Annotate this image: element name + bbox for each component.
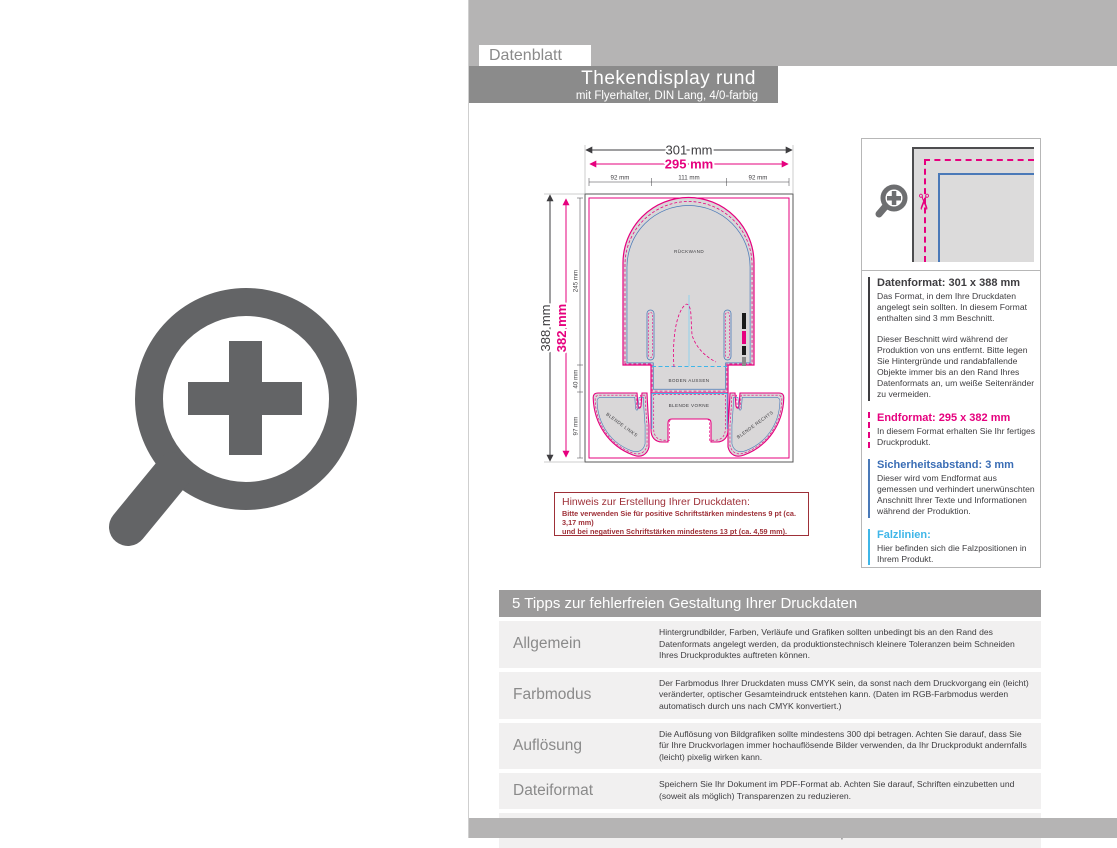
section-datenformat: Datenformat: 301 x 388 mm Das Format, in… <box>868 277 1036 401</box>
dim-92b: 92 mm <box>749 175 768 182</box>
tip-row-dateiformat: Dateiformat Speichern Sie Ihr Dokument i… <box>499 773 1041 808</box>
section-title: Datenformat: 301 x 388 mm <box>877 277 1036 289</box>
preview-safety-line <box>938 173 1034 262</box>
cut-line-front <box>651 393 728 442</box>
hint-box: Hinweis zur Erstellung Ihrer Druckdaten:… <box>554 492 809 536</box>
dim-388: 388 mm <box>538 305 553 352</box>
scissors-icon: ✂ <box>910 193 936 211</box>
tip-text: Der Farbmodus Ihrer Druckdaten muss CMYK… <box>659 672 1041 719</box>
section-title: Sicherheitsabstand: 3 mm <box>877 459 1036 471</box>
tip-text: Speichern Sie Ihr Dokument im PDF-Format… <box>659 773 1041 808</box>
tip-label: Farbmodus <box>499 672 659 719</box>
hint-line1: Bitte verwenden Sie für positive Schrift… <box>562 509 801 527</box>
hint-title: Hinweis zur Erstellung Ihrer Druckdaten: <box>562 496 801 508</box>
section-sicherheitsabstand: Sicherheitsabstand: 3 mm Dieser wird vom… <box>868 459 1036 518</box>
tip-text: Hintergrundbilder, Farben, Verläufe und … <box>659 621 1041 668</box>
dim-40: 40 mm <box>573 370 580 389</box>
dim-92a: 92 mm <box>611 175 630 182</box>
label-boden-aussen: BODEN AUSSEN <box>668 378 709 383</box>
section-falzlinien: Falzlinien: Hier befinden sich die Falzp… <box>868 529 1036 565</box>
format-preview: ✂ <box>862 139 1040 271</box>
tips-header: 5 Tipps zur fehlerfreien Gestaltung Ihre… <box>499 590 1041 617</box>
tip-row-aufloesung: Auflösung Die Auflösung von Bildgrafiken… <box>499 723 1041 770</box>
tip-row-allgemein: Allgemein Hintergrundbilder, Farben, Ver… <box>499 621 1041 668</box>
hint-line2: und bei negativen Schriftstärken mindest… <box>562 527 801 536</box>
dim-382: 382 mm <box>554 304 569 352</box>
tips-table: 5 Tipps zur fehlerfreien Gestaltung Ihre… <box>499 590 1041 848</box>
tip-label: Dateiformat <box>499 773 659 808</box>
section-title: Endformat: 295 x 382 mm <box>877 412 1036 424</box>
page-title: Thekendisplay rund <box>469 68 778 90</box>
section-body: In diesem Format erhalten Sie Ihr fertig… <box>877 426 1036 448</box>
section-endformat: Endformat: 295 x 382 mm In diesem Format… <box>868 412 1036 448</box>
title-bar: Thekendisplay rund mit Flyerhalter, DIN … <box>469 66 778 103</box>
dim-295: 295 mm <box>665 157 713 172</box>
plus-vertical <box>229 341 262 455</box>
section-title: Falzlinien: <box>877 529 1036 541</box>
bottom-gray-band <box>469 818 1117 838</box>
format-sections: Datenformat: 301 x 388 mm Das Format, in… <box>868 277 1036 576</box>
die-cut-diagram: RÜCKWAND BODEN AUSSEN BLENDE VORNE BLEND… <box>536 135 821 485</box>
zoom-plus-icon <box>108 287 360 555</box>
sheet: Datenblatt Thekendisplay rund mit Flyerh… <box>468 0 1117 838</box>
section-body: Das Format, in dem Ihre Druckdaten angel… <box>877 291 1036 325</box>
label-blende-vorne: BLENDE VORNE <box>669 403 710 408</box>
datasheet-page: Datenblatt Thekendisplay rund mit Flyerh… <box>0 0 1117 838</box>
label-rueckwand: RÜCKWAND <box>674 248 704 254</box>
slot-right <box>724 310 731 360</box>
tip-label: Allgemein <box>499 621 659 668</box>
dim-301: 301 mm <box>666 143 713 158</box>
info-panel: ✂ Datenformat: 301 x 388 mm Das Format, … <box>861 138 1041 568</box>
dim-97: 97 mm <box>573 417 580 436</box>
tip-row-farbmodus: Farbmodus Der Farbmodus Ihrer Druckdaten… <box>499 672 1041 719</box>
datenblatt-tab: Datenblatt <box>479 45 591 66</box>
preview-sheet: ✂ <box>912 147 1034 262</box>
dim-245: 245 mm <box>573 270 580 292</box>
section-body: Dieser wird vom Endformat aus gemessen u… <box>877 473 1036 518</box>
dim-111: 111 mm <box>678 175 699 182</box>
tip-label: Auflösung <box>499 723 659 770</box>
section-body: Hier befinden sich die Falzpositionen in… <box>877 543 1036 565</box>
section-body2: Dieser Beschnitt wird während der Produk… <box>877 334 1036 401</box>
slot-left <box>647 310 654 360</box>
legend-marks <box>742 313 746 366</box>
tip-text: Die Auflösung von Bildgrafiken sollte mi… <box>659 723 1041 770</box>
magnifier-handle <box>128 471 174 527</box>
zoom-in-icon <box>874 183 910 223</box>
page-subtitle: mit Flyerhalter, DIN Lang, 4/0-farbig <box>469 90 778 102</box>
